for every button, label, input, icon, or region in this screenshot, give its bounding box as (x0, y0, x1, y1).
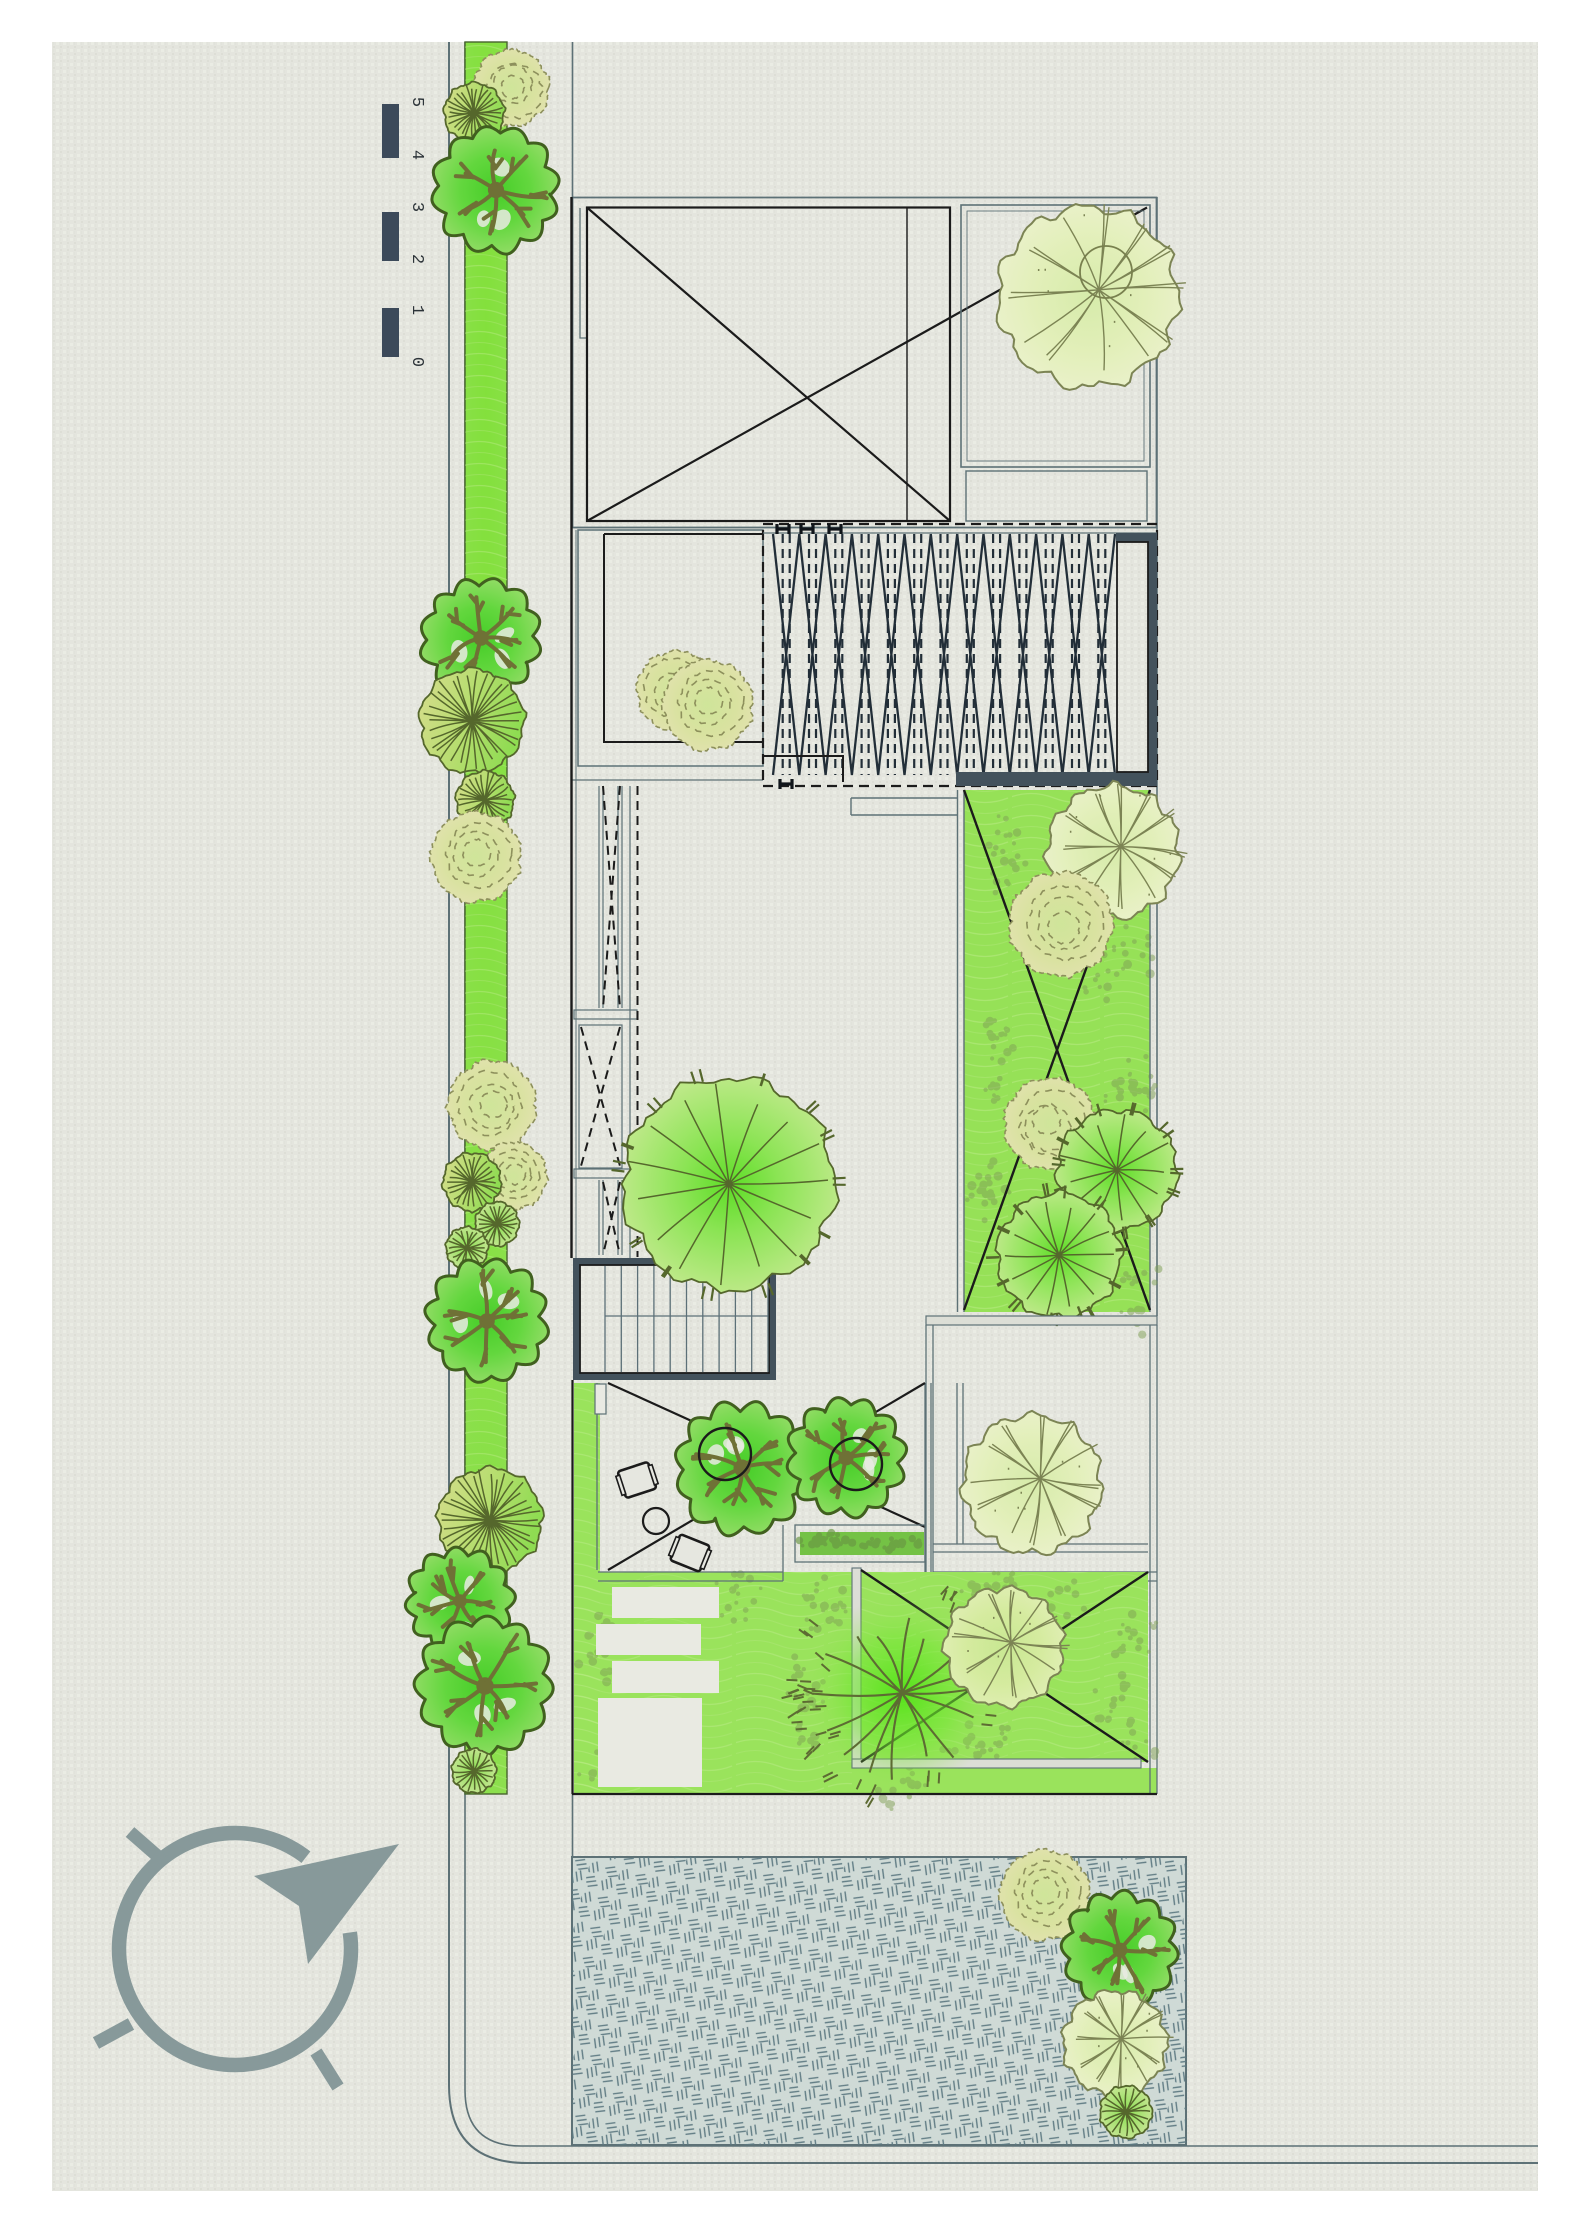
svg-text:2: 2 (407, 254, 426, 264)
svg-text:3: 3 (407, 202, 426, 212)
svg-text:4: 4 (407, 150, 426, 160)
svg-text:1: 1 (407, 305, 426, 315)
svg-text:5: 5 (407, 97, 426, 107)
svg-text:0: 0 (407, 357, 426, 367)
